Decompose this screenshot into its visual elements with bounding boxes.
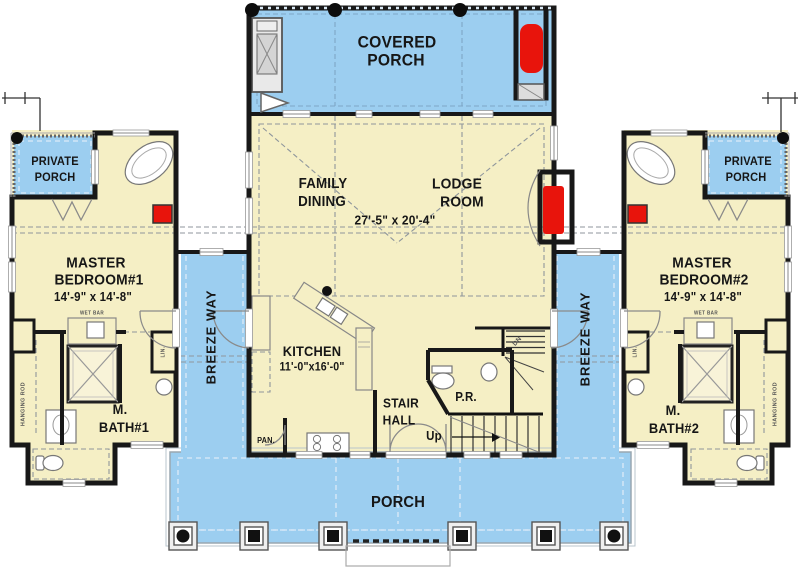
wet-bar-left-label: WET BAR bbox=[80, 312, 104, 317]
private-porch-right-label: PRIVATE bbox=[724, 155, 772, 167]
master-bedroom-2-label: BEDROOM#2 bbox=[659, 273, 748, 288]
master-bedroom-1-label: MASTER bbox=[66, 256, 125, 271]
bedroom1-fireplace bbox=[153, 205, 172, 223]
porch-grill bbox=[252, 18, 282, 92]
lodge-room-label: LODGE bbox=[432, 177, 482, 192]
front-porch-label: PORCH bbox=[371, 495, 425, 511]
porch-column bbox=[319, 522, 347, 550]
porch-column bbox=[532, 522, 560, 550]
bath-sink-left bbox=[156, 379, 172, 395]
master-bath-1-label: BATH#1 bbox=[99, 420, 149, 434]
porch-column bbox=[448, 522, 476, 550]
downspout-left bbox=[2, 92, 40, 131]
covered-porch-label: PORCH bbox=[367, 52, 424, 69]
shower-left bbox=[68, 346, 118, 402]
porch-post bbox=[453, 3, 467, 17]
kitchen-post bbox=[322, 286, 332, 296]
master-bath-2-label: BATH#2 bbox=[649, 421, 699, 435]
family-dining-label: FAMILY bbox=[299, 177, 348, 192]
great-room-dimension: 27'-5" x 20'-4" bbox=[355, 214, 436, 227]
porch-post bbox=[777, 132, 789, 144]
porch-column bbox=[169, 522, 197, 550]
porch-post bbox=[11, 132, 23, 144]
linen-right-label: LIN. bbox=[634, 346, 639, 357]
master-bedroom-1-label: BEDROOM#1 bbox=[54, 273, 143, 288]
toilet-left bbox=[36, 456, 63, 471]
range bbox=[307, 433, 349, 453]
master-bedroom-2-label: MASTER bbox=[672, 256, 731, 271]
covered-porch-label: COVERED bbox=[358, 34, 437, 51]
wet-bar-left bbox=[68, 318, 116, 344]
master-bath-2-label: M. bbox=[666, 403, 681, 417]
wet-bar-right bbox=[684, 318, 732, 344]
floor-plan: COVERED PORCH FAMILY DINING LODGE ROOM 2… bbox=[0, 0, 800, 571]
pantry-label: PAN. bbox=[257, 437, 275, 445]
porch-post bbox=[245, 3, 259, 17]
porch-column bbox=[240, 522, 268, 550]
private-porch-left-label: PRIVATE bbox=[31, 155, 79, 167]
private-porch-right-label: PORCH bbox=[726, 171, 767, 183]
porch-post bbox=[328, 3, 342, 17]
shower-right bbox=[682, 346, 732, 402]
family-dining-label: DINING bbox=[298, 195, 346, 210]
linen-left-label: LIN. bbox=[162, 346, 167, 357]
breezeway-left-label: BREEZE WAY bbox=[205, 290, 218, 385]
stair-hall-label: HALL bbox=[383, 414, 416, 427]
kitchen-label: KITCHEN bbox=[283, 344, 342, 358]
master-bath-1-label: M. bbox=[113, 402, 128, 416]
porch-steps bbox=[346, 541, 450, 566]
porch-column bbox=[600, 522, 628, 550]
kitchen-dimension: 11'-0"x16'-0" bbox=[279, 362, 344, 374]
stair-hall-label: STAIR bbox=[383, 397, 419, 410]
hanging-rod-right-label: HANGING ROD bbox=[773, 382, 779, 426]
bath-sink-right bbox=[628, 379, 644, 395]
private-porch-left-label: PORCH bbox=[35, 171, 76, 183]
master-bedroom-1-dimension: 14'-9" x 14'-8" bbox=[54, 291, 132, 304]
hanging-rod-left-label: HANGING ROD bbox=[21, 382, 27, 426]
breezeway-right-label: BREEZE WAY bbox=[579, 292, 592, 387]
master-bedroom-2-dimension: 14'-9" x 14'-8" bbox=[664, 291, 742, 304]
bedroom2-fireplace bbox=[628, 205, 647, 223]
powder-room-label: P.R. bbox=[455, 391, 477, 404]
wet-bar-right-label: WET BAR bbox=[694, 312, 718, 317]
toilet-right bbox=[737, 456, 764, 471]
lodge-room-label: ROOM bbox=[440, 195, 484, 210]
stairs-up-label: Up bbox=[426, 430, 442, 443]
downspout-right bbox=[762, 92, 798, 132]
